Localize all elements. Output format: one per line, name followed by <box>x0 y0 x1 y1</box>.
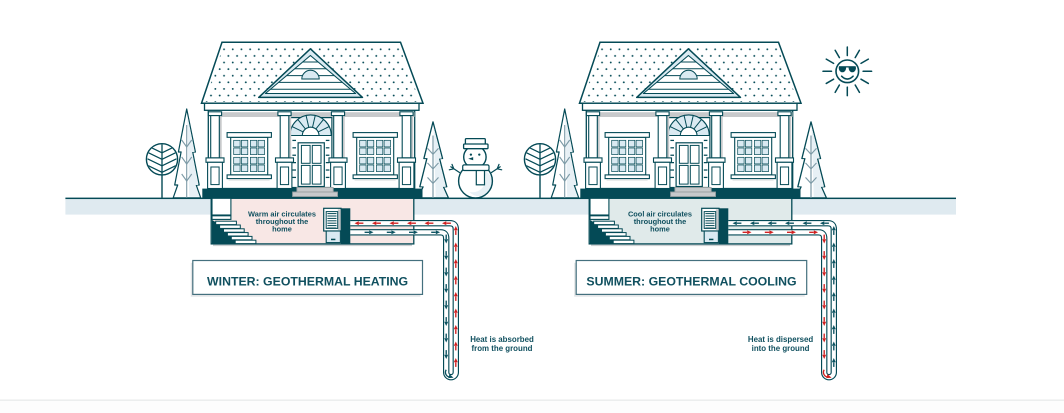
svg-text:WINTER: GEOTHERMAL HEATING: WINTER: GEOTHERMAL HEATING <box>207 275 408 289</box>
svg-text:SUMMER: GEOTHERMAL COOLING: SUMMER: GEOTHERMAL COOLING <box>586 275 796 289</box>
svg-text:home: home <box>272 224 292 233</box>
svg-text:into the ground: into the ground <box>752 344 810 353</box>
svg-text:Heat is absorbed: Heat is absorbed <box>470 335 534 344</box>
svg-text:Heat is dispersed: Heat is dispersed <box>748 335 814 344</box>
svg-text:from the ground: from the ground <box>472 344 533 353</box>
svg-text:home: home <box>650 224 670 233</box>
